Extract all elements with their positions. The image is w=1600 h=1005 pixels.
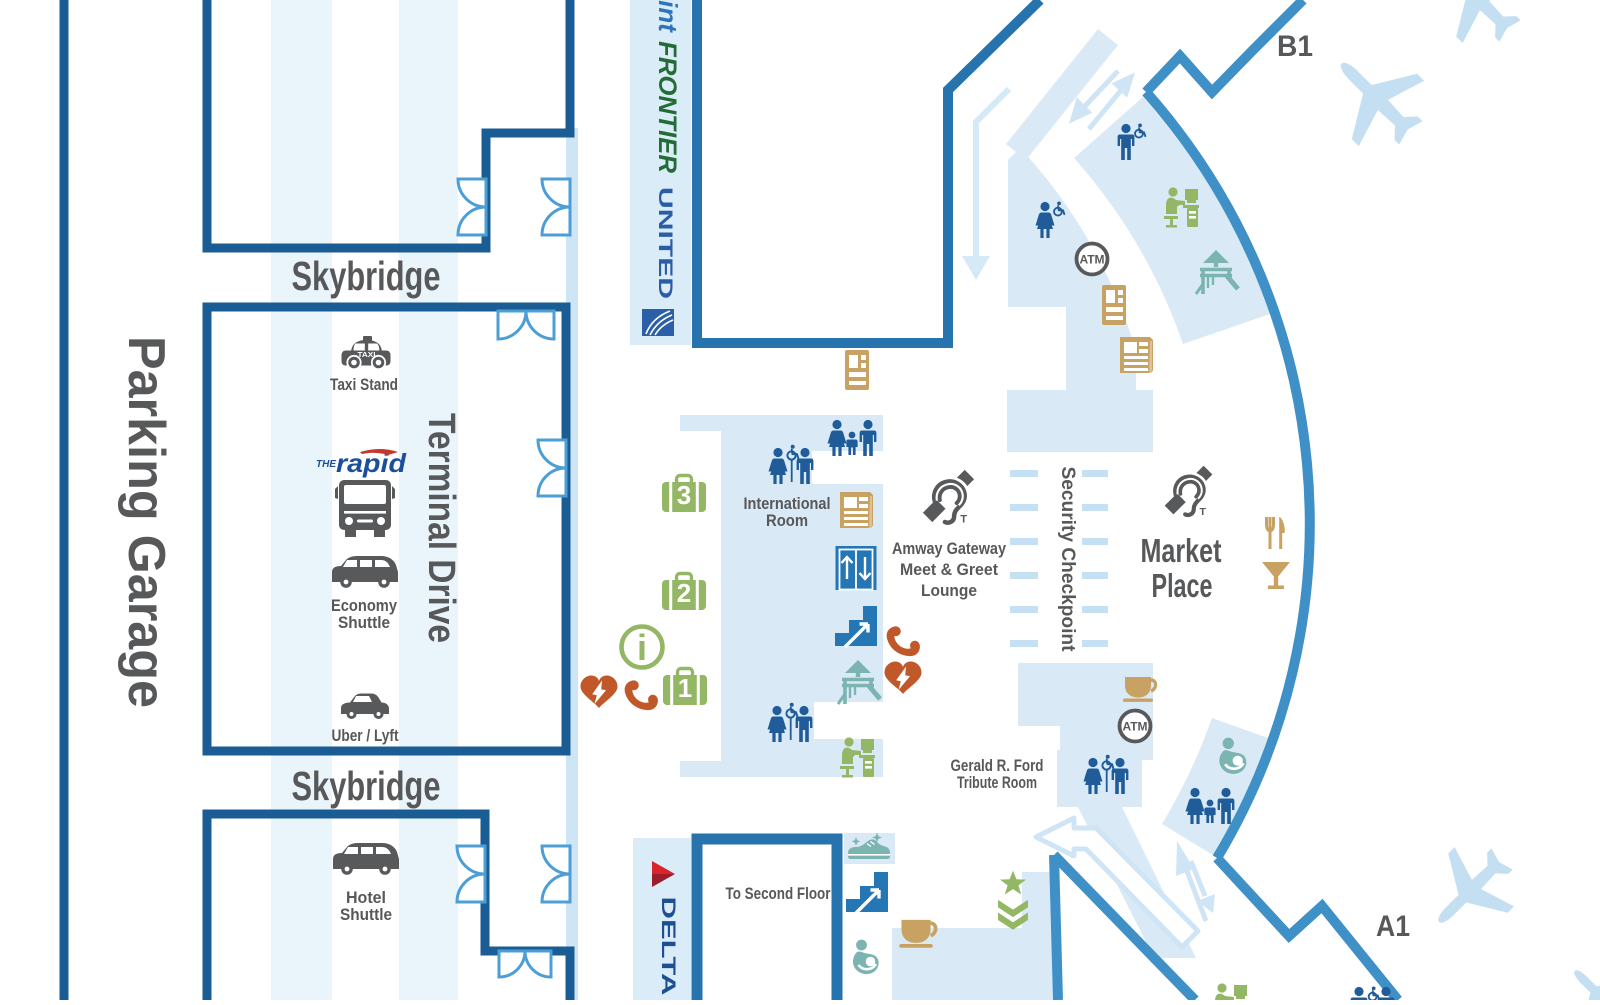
svg-text:Terminal Drive: Terminal Drive	[420, 413, 462, 643]
svg-text:Place: Place	[1152, 567, 1213, 604]
svg-text:FRONTIER: FRONTIER	[653, 41, 681, 173]
svg-text:Shuttle: Shuttle	[338, 613, 390, 632]
svg-text:Uber / Lyft: Uber / Lyft	[332, 726, 399, 745]
svg-text:Amway Gateway: Amway Gateway	[892, 539, 1006, 558]
svg-text:To Second Floor: To Second Floor	[726, 885, 831, 903]
svg-text:DELTA: DELTA	[657, 897, 678, 996]
svg-text:int: int	[653, 0, 683, 33]
svg-text:Parking Garage: Parking Garage	[117, 336, 175, 708]
svg-text:Shuttle: Shuttle	[340, 905, 392, 924]
svg-text:Skybridge: Skybridge	[292, 763, 441, 809]
svg-text:Tribute Room: Tribute Room	[957, 774, 1037, 792]
svg-text:Market: Market	[1141, 532, 1222, 569]
svg-text:3: 3	[677, 480, 691, 510]
svg-text:International: International	[744, 495, 831, 513]
svg-text:Lounge: Lounge	[921, 581, 977, 600]
svg-text:A1: A1	[1376, 910, 1410, 943]
svg-text:Taxi Stand: Taxi Stand	[330, 375, 398, 394]
svg-text:Skybridge: Skybridge	[292, 253, 441, 299]
svg-text:UNITED: UNITED	[654, 187, 676, 299]
svg-text:Security Checkpoint: Security Checkpoint	[1057, 467, 1078, 653]
svg-text:B1: B1	[1277, 30, 1313, 63]
svg-text:THE: THE	[316, 459, 336, 470]
svg-text:Gerald R. Ford: Gerald R. Ford	[951, 757, 1044, 775]
svg-text:2: 2	[677, 578, 691, 608]
svg-text:i: i	[637, 627, 647, 668]
svg-text:Meet & Greet: Meet & Greet	[900, 560, 998, 579]
svg-text:1: 1	[678, 673, 692, 703]
svg-text:Room: Room	[766, 512, 808, 530]
